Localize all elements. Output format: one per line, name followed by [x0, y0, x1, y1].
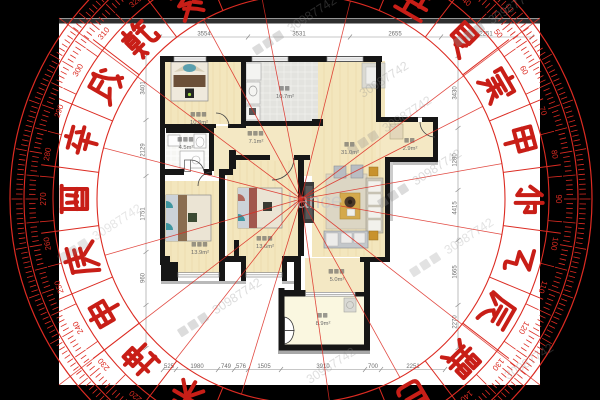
- svg-text:700: 700: [368, 364, 379, 370]
- svg-text:4.5m²: 4.5m²: [179, 145, 194, 151]
- svg-text:4415: 4415: [453, 201, 459, 215]
- svg-text:749: 749: [221, 364, 232, 370]
- svg-text:1980: 1980: [190, 364, 204, 370]
- svg-text:1505: 1505: [257, 364, 271, 370]
- svg-text:13.9m²: 13.9m²: [191, 250, 209, 256]
- svg-text:2270: 2270: [453, 315, 459, 329]
- svg-text:7.1m²: 7.1m²: [249, 139, 264, 145]
- svg-text:5.0m²: 5.0m²: [330, 277, 345, 283]
- svg-text:2655: 2655: [388, 32, 402, 38]
- svg-text:2129: 2129: [141, 143, 147, 157]
- svg-text:90: 90: [554, 195, 563, 204]
- svg-text:270: 270: [39, 192, 48, 206]
- svg-text:3430: 3430: [453, 86, 459, 100]
- svg-text:10.7m²: 10.7m²: [276, 94, 294, 100]
- svg-text:2.9m²: 2.9m²: [403, 146, 418, 152]
- svg-text:3554: 3554: [197, 32, 211, 38]
- svg-text:8.9m²: 8.9m²: [316, 321, 331, 327]
- svg-text:576: 576: [236, 364, 247, 370]
- svg-text:1665: 1665: [453, 265, 459, 279]
- svg-text:960: 960: [141, 272, 147, 283]
